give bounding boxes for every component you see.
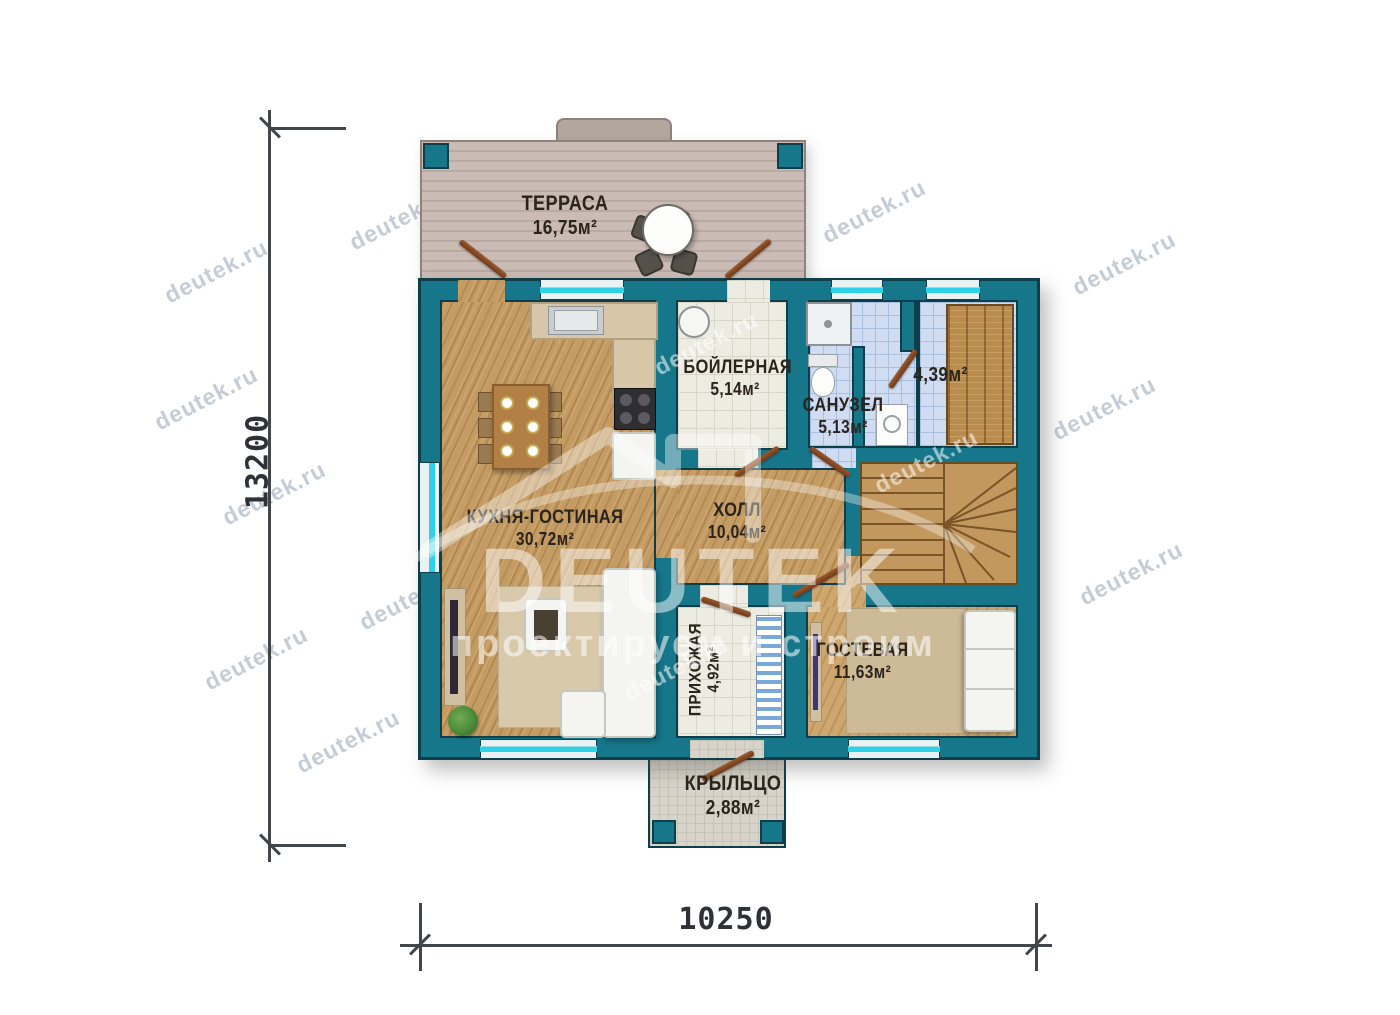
watermark: deutek.ru <box>1048 371 1161 446</box>
porch-pillar <box>652 820 676 844</box>
toilet <box>811 367 835 397</box>
window-glass <box>480 746 597 752</box>
door-opening <box>458 280 505 302</box>
dimension-label-width: 10250 <box>656 902 796 937</box>
room-area: 4,39м² <box>895 364 985 388</box>
window-glass <box>831 287 883 293</box>
room-area: 16,75м² <box>483 217 646 241</box>
logo-name: DEUTEK <box>480 530 906 632</box>
toilet-tank <box>808 354 838 367</box>
room-label-wardrobe: 4,39м² <box>895 364 985 388</box>
porch-pillar <box>760 820 784 844</box>
floor-plan-canvas: deutek.ru deutek.ru deutek.ru deutek.ru … <box>0 0 1400 1015</box>
room-area: 2,88м² <box>677 797 789 821</box>
watermark: deutek.ru <box>160 234 273 309</box>
wall-stub <box>900 300 916 352</box>
room-label-boiler: БОЙЛЕРНАЯ 5,14м² <box>683 357 786 401</box>
terrace-table <box>642 204 694 256</box>
terrace-step <box>556 118 672 142</box>
window-glass <box>848 746 940 752</box>
room-name: КРЫЛЬЦО <box>677 772 789 797</box>
watermark: deutek.ru <box>1068 226 1181 301</box>
logo-watermark: DEUTEK проектируем и строим <box>408 400 978 670</box>
door-opening <box>727 280 770 302</box>
dimension-label-height: 13200 <box>241 392 276 532</box>
watermark: deutek.ru <box>1075 536 1188 611</box>
watermark: deutek.ru <box>292 704 405 779</box>
window-glass <box>926 287 980 293</box>
horizontal-dimension-line <box>400 944 1052 947</box>
terrace-pillar <box>777 143 803 169</box>
dimension-extension <box>268 127 346 130</box>
dimension-extension <box>268 844 346 847</box>
window-glass <box>540 287 624 293</box>
dimension-extension <box>419 903 422 971</box>
room-label-terrace: ТЕРРАСА 16,75м² <box>483 192 646 240</box>
plant <box>448 706 478 736</box>
shower-drain <box>824 320 832 328</box>
dimension-extension <box>1035 903 1038 971</box>
watermark: deutek.ru <box>818 174 931 249</box>
bed-seam <box>966 688 1014 690</box>
kitchen-sink-basin <box>554 310 598 331</box>
room-name: ТЕРРАСА <box>483 192 646 217</box>
room-label-porch: КРЫЛЬЦО 2,88м² <box>677 772 789 820</box>
room-area: 5,14м² <box>683 379 786 400</box>
sofa-chaise <box>560 690 606 738</box>
watermark: deutek.ru <box>200 621 313 696</box>
terrace-pillar <box>423 143 449 169</box>
